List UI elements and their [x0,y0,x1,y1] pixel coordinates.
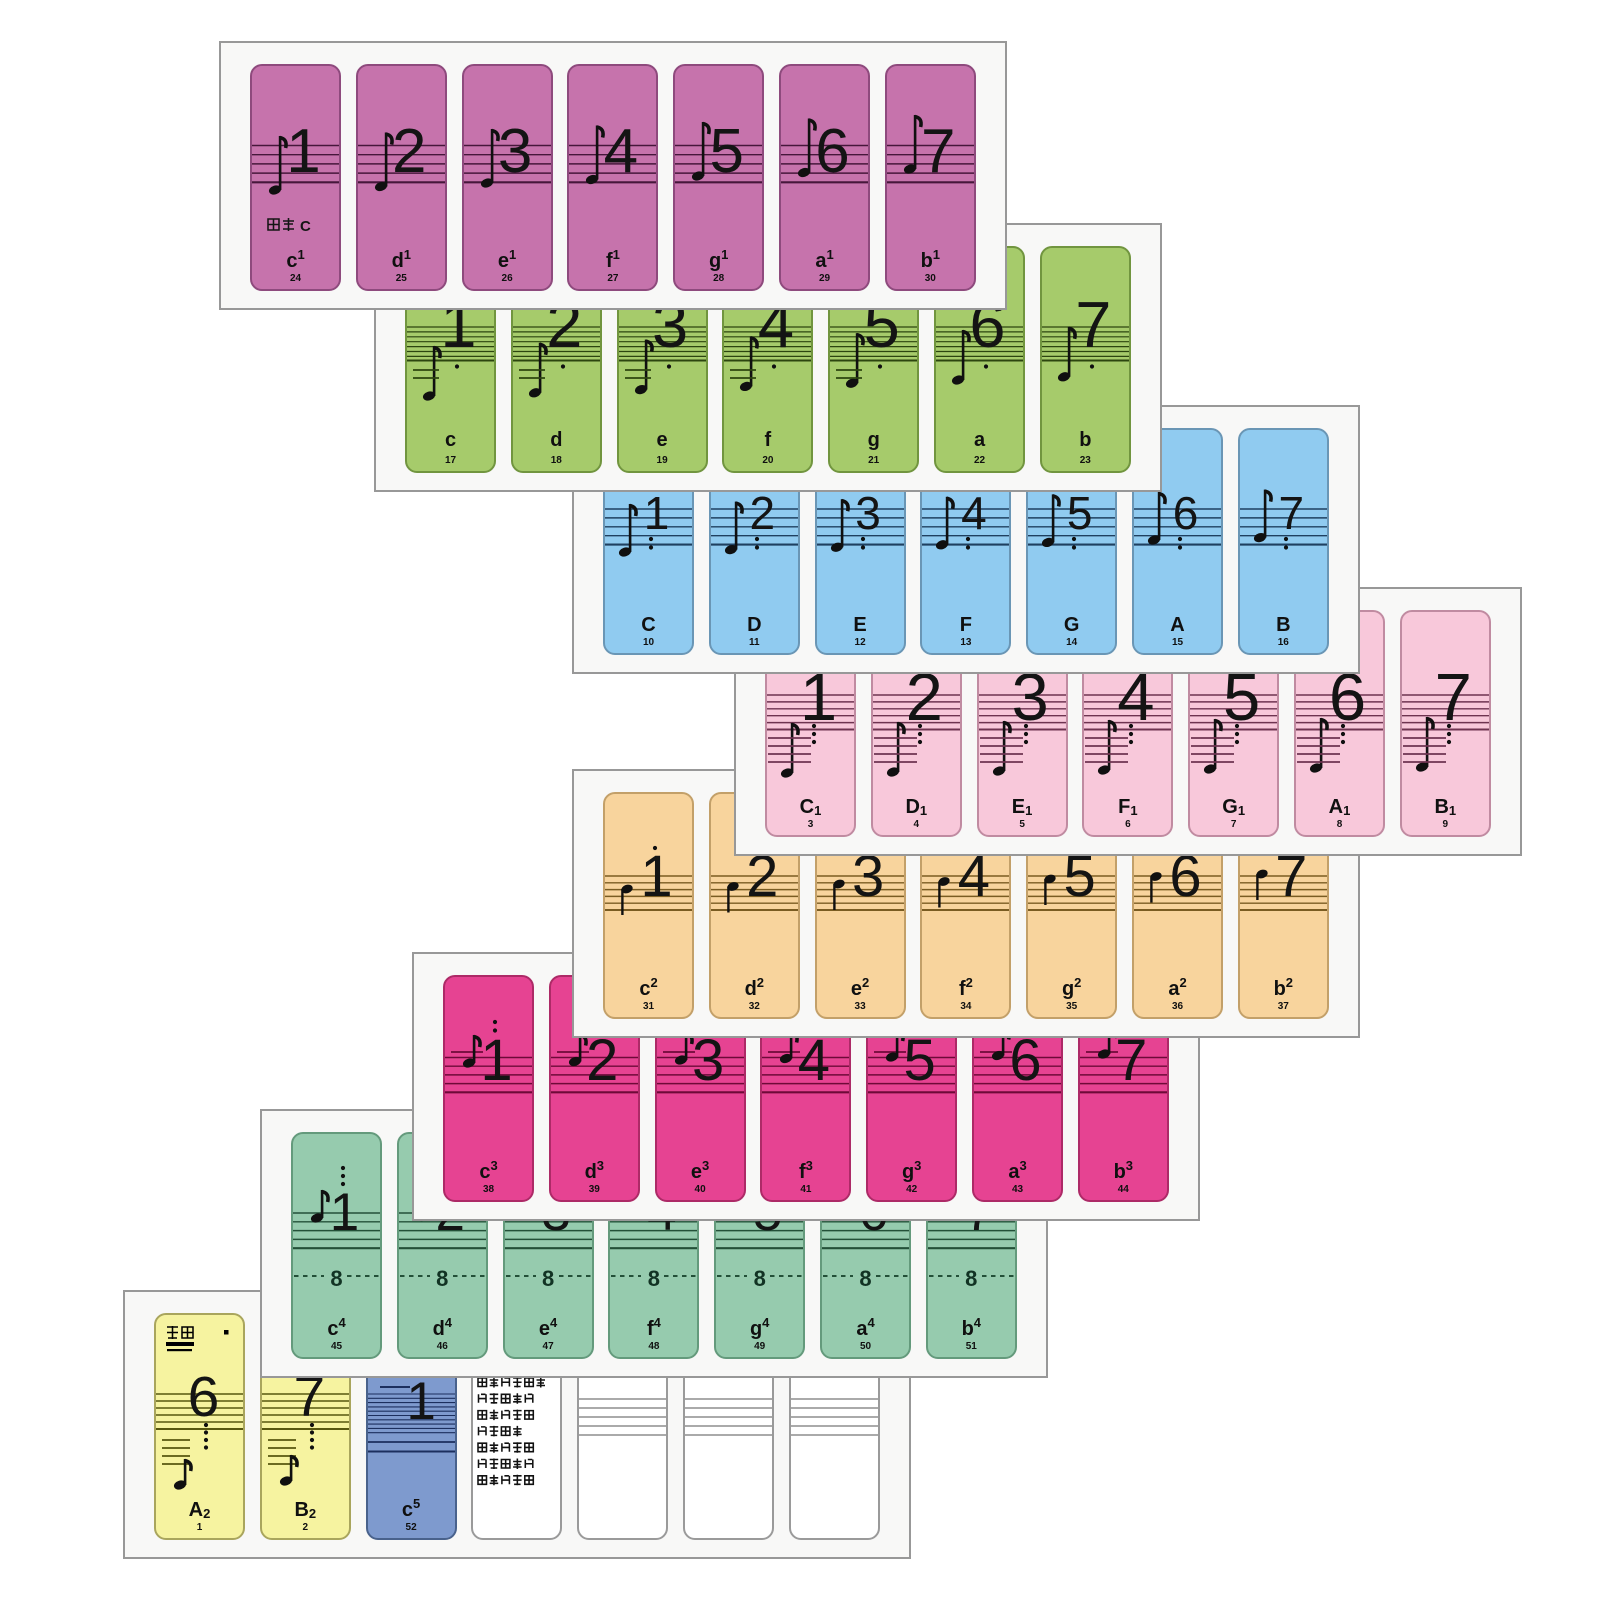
svg-text:C: C [300,218,311,235]
